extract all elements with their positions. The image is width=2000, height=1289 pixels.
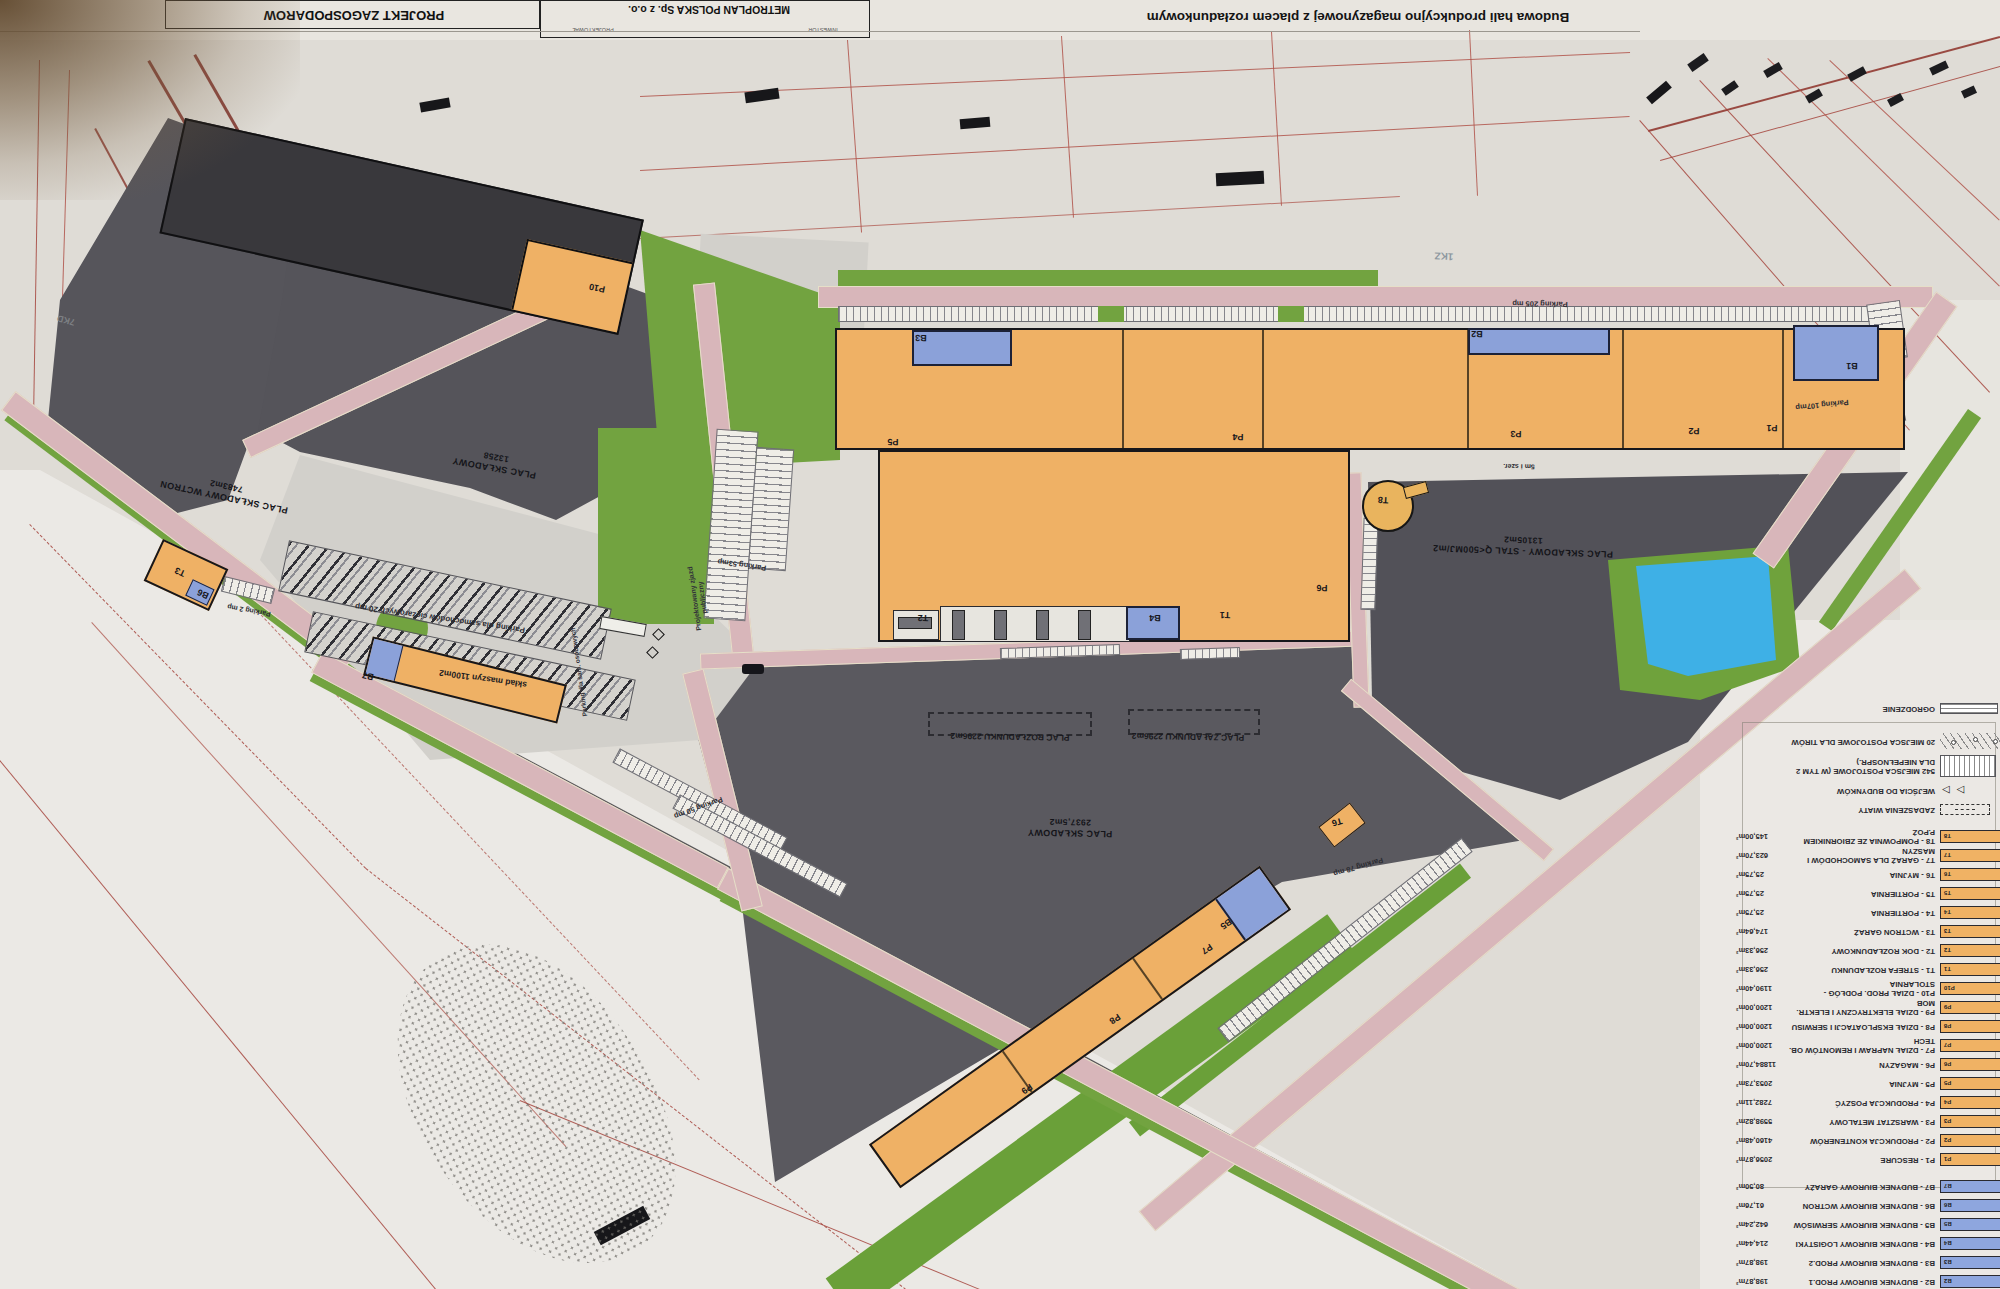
building-tag-p1: P1 [1766, 423, 1777, 433]
legend-symbol: B7 [1940, 1180, 2000, 1193]
legend-row-label: WEJŚCIA DO BUDYNKÓW [1837, 786, 1935, 795]
legend-row: T5T5 - PORTIERNIA25,75m² [1736, 884, 2000, 903]
legend-row-area: 1200,00m² [1736, 1022, 1772, 1031]
legend-symbol: P1 [1940, 1153, 2000, 1166]
legend-row-label: T1 - STREFA ROZŁADUNKU [1831, 965, 1935, 974]
legend-row-area: 1200,00m² [1736, 1003, 1772, 1012]
hall-divider-2 [1262, 330, 1264, 448]
cad-line [1061, 36, 1074, 218]
legend-row-area: 642,24m² [1736, 1220, 1768, 1229]
parking-stripes-icon [1940, 755, 1996, 777]
building-tag-b1: B1 [1846, 361, 1858, 371]
legend-row-label: P1 - RESCURE [1880, 1155, 1935, 1164]
legend-row-label: T6 - MYJNIA [1890, 870, 1936, 879]
legend-row-area: 25,75m² [1736, 889, 1764, 898]
truck-space-dot [1993, 740, 1998, 745]
legend-row-label: B4 - BUDYNEK BIUROWY LOGISTYKI [1796, 1239, 1935, 1248]
cad-line [1271, 32, 1282, 206]
legend-symbol: B5 [1940, 1218, 2000, 1231]
legend-row-area: 214,44m² [1736, 1239, 1768, 1248]
legend-row: P7P7 - DZIAŁ NAPRAW I REMONTÓW OB. TECH1… [1736, 1036, 2000, 1055]
legend-symbol: P7 [1940, 1039, 2000, 1052]
legend-row-label: ZADASZENIA WIATY [1858, 805, 1935, 814]
legend-row: OGRODZENIE [1736, 699, 2000, 718]
legend-symbol: P2 [1940, 1134, 2000, 1147]
legend-row-area: 623,70m² [1736, 851, 1768, 860]
hall-divider-1 [1122, 330, 1124, 448]
cad-line [640, 196, 1400, 239]
legend-symbol: B6 [1940, 1199, 2000, 1212]
legend-row-label: P3 - WARSZTAT METALOWY [1829, 1117, 1935, 1126]
legend-symbol [1940, 804, 2000, 815]
legend-swatch: B2 [1940, 1275, 2000, 1288]
legend-row: B2B2 - BUDYNEK BIUROWY PROD.1198,87m² [1736, 1272, 2000, 1289]
building-b1 [1793, 325, 1879, 381]
legend-swatch: P8 [1940, 1020, 2000, 1033]
cad-line [847, 40, 862, 232]
legend-row: B5B5 - BUDYNEK BIUROWY SERWISÓW642,24m² [1736, 1215, 2000, 1234]
building-tag-t8: T8 [1377, 495, 1388, 506]
legend-row: T8T8 - POMPOWNIA ZE ZBIORNIKIEM P.POŻ145… [1736, 827, 2000, 846]
legend-row-area: 174,64m² [1736, 927, 1768, 936]
building-b4 [1126, 606, 1180, 640]
cad-line [640, 52, 1630, 97]
legend-symbol: P3 [1940, 1115, 2000, 1128]
legend-row: P9P9 - DZIAŁ ELEKTRYCZNY I ELEKTR. MOB12… [1736, 998, 2000, 1017]
legend-symbol: T3 [1940, 925, 2000, 938]
legend-swatch: T6 [1940, 868, 2000, 881]
legend-symbol: P8 [1940, 1020, 2000, 1033]
legend-swatch: B4 [1940, 1237, 2000, 1250]
building-tag-b4: B4 [1149, 613, 1161, 623]
legend-row-area: 7282,11m² [1736, 1098, 1772, 1107]
legend-row-area: 61,76m² [1736, 1201, 1764, 1210]
legend-row: T3T3 - WCTRON GARAŻ174,64m² [1736, 922, 2000, 941]
legend-swatch: T1 [1940, 963, 2000, 976]
cadastral-building [1763, 62, 1783, 78]
legend-row-label: P5 - MYJNIA [1889, 1079, 1935, 1088]
photo-corner-shadow [0, 0, 300, 200]
legend-row: P5P5 - MYJNIA2053,73m² [1736, 1074, 2000, 1093]
cad-line [1829, 60, 2000, 221]
dock-strip [940, 606, 1130, 642]
legend-row-label: T2 - DOK ROZŁADUNKOWY [1831, 946, 1935, 955]
cadastral-building [1887, 93, 1904, 107]
building-tag-p5: P5 [887, 437, 898, 447]
legend-row: T7T7 - GARAŻ DLA SAMOCHODÓW I MASZYN623,… [1736, 846, 2000, 865]
legend-swatch: P5 [1940, 1077, 2000, 1090]
legend-row: B6B6 - BUDYNEK BIUROWY WCTRON61,76m² [1736, 1196, 2000, 1215]
canopy-icon [1940, 804, 1990, 815]
legend-row-area: 2056,87m² [1736, 1155, 1772, 1164]
legend-swatch: P10 [1940, 982, 2000, 995]
building-tag-b3: B3 [915, 333, 927, 343]
legend-swatch: T4 [1940, 906, 2000, 919]
parking-strip-53b [748, 447, 794, 571]
legend-row-label: B5 - BUDYNEK BIUROWY SERWISÓW [1794, 1220, 1935, 1229]
legend-row: ZADASZENIA WIATY [1736, 800, 2000, 819]
legend-row-area: 1200,00m² [1736, 1041, 1772, 1050]
legend-row-label: 542 MIEJSCA POSTOJOWE (W TYM 2 DLA NIEPE… [1783, 757, 1935, 774]
legend-symbol: T8 [1940, 830, 2000, 843]
building-tag-t2: T2 [918, 613, 929, 623]
legend-swatch: T7 [1940, 849, 2000, 862]
site-plan-photo: PLAC SKŁADOWY WCTRON 7483m2 PLAC SKŁADOW… [0, 0, 2000, 1289]
legend-swatch: P4 [1940, 1096, 2000, 1109]
legend-row-label: 20 MIEJSCA POSTOJOWE DLA TIRÓW [1791, 737, 1935, 746]
legend-row-label: B7 - BUDYNEK BIUROWY GARAŻY [1805, 1182, 1935, 1191]
titleblock-company-name: METROPLAN POLSKA Sp. z o.o. [628, 4, 790, 16]
legend-row: 20 MIEJSCA POSTOJOWE DLA TIRÓW [1736, 732, 2000, 751]
legend-symbol: B3 [1940, 1256, 2000, 1269]
legend-swatch: T2 [1940, 944, 2000, 957]
titleblock-cell-left: PROJEKTOWAŁ [572, 27, 613, 33]
legend-row-area: 4160,48m² [1736, 1136, 1772, 1145]
cadastral-building [1805, 89, 1823, 104]
legend-row-area: 256,33m² [1736, 946, 1768, 955]
dock-truck-2 [994, 610, 1007, 640]
legend-swatch: B3 [1940, 1256, 2000, 1269]
survey-mark [1216, 171, 1265, 186]
fence-icon [1940, 703, 1998, 714]
survey-mark [960, 117, 991, 130]
building-tag-p3: P3 [1510, 429, 1521, 439]
building-tag-p6: P6 [1316, 583, 1327, 593]
legend-symbol: B2 [1940, 1275, 2000, 1288]
legend-row-label: T7 - GARAŻ DLA SAMOCHODÓW I MASZYN [1783, 847, 1935, 864]
cadastral-building [1929, 61, 1949, 76]
parking-205-gap1 [1098, 306, 1124, 322]
building-tag-b2: B2 [1471, 329, 1483, 339]
legend-row-area: 198,87m² [1736, 1258, 1768, 1267]
legend-symbol: P4 [1940, 1096, 2000, 1109]
legend-swatch: P1 [1940, 1153, 2000, 1166]
dock-truck-4 [1078, 610, 1091, 640]
label-road-ref-1kz: 1KZ [1434, 250, 1453, 263]
legend-symbol: P6 [1940, 1058, 2000, 1071]
legend-row-label: T3 - WCTRON GARAŻ [1854, 927, 1935, 936]
legend-row-area: 80,50m² [1736, 1182, 1764, 1191]
legend-swatch: P3 [1940, 1115, 2000, 1128]
legend-row-area: 2053,73m² [1736, 1079, 1772, 1088]
titleblock-drawing-title: Budowa hali produkcyjno magazynowej z pl… [1147, 9, 1569, 25]
label-parking-205: Parking 205 mp [1512, 298, 1568, 308]
cadastral-building [1847, 66, 1867, 82]
titleblock-cell-right: INWESTOR [808, 27, 838, 33]
legend-swatch: B5 [1940, 1218, 2000, 1231]
survey-mark [1646, 81, 1672, 105]
building-tag-t1: T1 [1220, 610, 1231, 620]
legend-symbol [1940, 755, 2000, 777]
legend-row-label: P7 - DZIAŁ NAPRAW I REMONTÓW OB. TECH [1783, 1037, 1935, 1054]
canopy-icon-dash [1955, 809, 1975, 810]
hall-divider-5 [1782, 330, 1784, 448]
parking-strip-steel [1360, 518, 1378, 610]
legend-symbol [1940, 703, 2000, 714]
legend-symbol: T6 [1940, 868, 2000, 881]
cadastral-building [1961, 85, 1977, 98]
titleblock-company-box: METROPLAN POLSKA Sp. z o.o. PROJEKTOWAŁ … [540, 0, 870, 38]
legend-row: T2T2 - DOK ROZŁADUNKOWY256,33m² [1736, 941, 2000, 960]
truck-space-dot [1951, 741, 1956, 746]
legend-row-area: 1190,40m² [1736, 984, 1772, 993]
legend-swatch: B7 [1940, 1180, 2000, 1193]
legend-symbol: T7 [1940, 849, 2000, 862]
band-divider-2 [1132, 958, 1162, 1000]
legend-symbol: P5 [1940, 1077, 2000, 1090]
legend-row: T1T1 - STREFA ROZŁADUNKU256,33m² [1736, 960, 2000, 979]
legend-row: T6T6 - MYJNIA25,75m² [1736, 865, 2000, 884]
legend-row: P10P10 - DZIAŁ PROD. PODŁÓG - STOLARNIA1… [1736, 979, 2000, 998]
legend-row-label: P10 - DZIAŁ PROD. PODŁÓG - STOLARNIA [1783, 980, 1935, 997]
legend-row: ▷ ▷WEJŚCIA DO BUDYNKÓW [1736, 781, 2000, 800]
legend-swatch: T8 [1940, 830, 2000, 843]
legend-row-label: OGRODZENIE [1883, 704, 1935, 713]
legend-row: B4B4 - BUDYNEK BIUROWY LOGISTYKI214,44m² [1736, 1234, 2000, 1253]
legend-symbol: T5 [1940, 887, 2000, 900]
dock-truck-1 [952, 610, 965, 640]
legend-row-label: P8 - DZIAŁ EKSPLOATACJI I SERWISU [1792, 1022, 1935, 1031]
cad-line [640, 116, 1630, 171]
legend-row-label: T4 - PORTIERNIA [1871, 908, 1935, 917]
legend-row: P4P4 - PRODUKCJA POSZYĆ7282,11m² [1736, 1093, 2000, 1112]
legend-row-label: B6 - BUDYNEK BIUROWY WCTRON [1803, 1201, 1935, 1210]
building-tag-p4: P4 [1232, 432, 1243, 442]
road-top [818, 286, 1933, 308]
legend-symbol: T1 [1940, 963, 2000, 976]
legend-row-label: T5 - PORTIERNIA [1871, 889, 1935, 898]
cadastral-building [1721, 80, 1739, 96]
legend-row-area: 256,33m² [1736, 965, 1768, 974]
legend-row-label: P2 - PRODUKCJA KONTENERÓW [1810, 1136, 1935, 1145]
legend-row-area: 5598,82m² [1736, 1117, 1772, 1126]
legend-row-label: P9 - DZIAŁ ELEKTRYCZNY I ELEKTR. MOB [1783, 999, 1935, 1016]
entrance-arrows-icon: ▷ ▷ [1940, 785, 1964, 796]
legend-row-label: P4 - PRODUKCJA POSZYĆ [1835, 1098, 1935, 1107]
truck-space-dot [1973, 738, 1978, 743]
label-yard-south: PLAC SKŁADOWY 2937,5m2 [1027, 817, 1112, 839]
legend-row-area: 25,75m² [1736, 870, 1764, 879]
legend-row: P8P8 - DZIAŁ EKSPLOATACJI I SERWISU1200,… [1736, 1017, 2000, 1036]
legend-row-label: T8 - POMPOWNIA ZE ZBIORNIKIEM P.POŻ [1783, 828, 1935, 845]
label-zone-unloading: PLAC ROZŁADUNKU 2296m2 [950, 731, 1069, 743]
legend-row: P6P6 - MAGAZYN11884,70m² [1736, 1055, 2000, 1074]
parking-strip-205 [838, 306, 1894, 322]
legend-symbol: ▷ ▷ [1940, 785, 2000, 796]
parking-205-gap2 [1278, 306, 1304, 322]
legend-symbol: T2 [1940, 944, 2000, 957]
legend-row-area: 11884,70m² [1736, 1060, 1776, 1069]
building-b2 [1468, 328, 1610, 355]
hall-divider-4 [1622, 330, 1624, 448]
legend-row: B3B3 - BUDYNEK BIUROWY PROD.2198,87m² [1736, 1253, 2000, 1272]
legend-row: 542 MIEJSCA POSTOJOWE (W TYM 2 DLA NIEPE… [1736, 751, 2000, 781]
legend-swatch: T5 [1940, 887, 2000, 900]
legend-symbol [1940, 734, 2000, 750]
dock-truck-3 [1036, 610, 1049, 640]
cad-line [1469, 30, 1478, 196]
legend-symbol: P10 [1940, 982, 2000, 995]
legend-row: P1P1 - RESCURE2056,87m² [1736, 1150, 2000, 1169]
building-tag-p2: P2 [1688, 426, 1699, 436]
legend-row-area: 145,00m² [1736, 832, 1768, 841]
legend-swatch: P6 [1940, 1058, 2000, 1071]
legend: OGRODZENIE20 MIEJSCA POSTOJOWE DLA TIRÓW… [1736, 699, 2000, 1289]
legend-row-area: 198,87m² [1736, 1277, 1768, 1286]
legend-symbol: B4 [1940, 1237, 2000, 1250]
legend-swatch: B6 [1940, 1199, 2000, 1212]
legend-row-label: B3 - BUDYNEK BIUROWY PROD.2 [1809, 1258, 1935, 1267]
legend-symbol: T4 [1940, 906, 2000, 919]
legend-row: T4T4 - PORTIERNIA25,75m² [1736, 903, 2000, 922]
label-yard-south-name: PLAC SKŁADOWY [1027, 827, 1112, 839]
parking-strip-dock2 [1180, 647, 1240, 660]
legend-row-area: 25,75m² [1736, 908, 1764, 917]
road-sign-pill [742, 664, 764, 674]
legend-row-label: B2 - BUDYNEK BIUROWY PROD.1 [1809, 1277, 1935, 1286]
legend-row-label: P6 - MAGAZYN [1879, 1060, 1935, 1069]
cadastral-building [1687, 53, 1709, 72]
survey-mark [419, 97, 450, 112]
truck-parking-icon [1940, 734, 2000, 750]
legend-swatch: P2 [1940, 1134, 2000, 1147]
legend-row: P3P3 - WARSZTAT METALOWY5598,82m² [1736, 1112, 2000, 1131]
legend-swatch: P9 [1940, 1001, 2000, 1014]
legend-symbol: P9 [1940, 1001, 2000, 1014]
legend-row: B7B7 - BUDYNEK BIUROWY GARAŻY80,50m² [1736, 1177, 2000, 1196]
survey-mark [744, 88, 779, 104]
label-zone-loading: PLAC ZAŁADUNKU 2296m2 [1132, 731, 1245, 743]
legend-swatch: T3 [1940, 925, 2000, 938]
legend-swatch: P7 [1940, 1039, 2000, 1052]
building-b3 [912, 330, 1012, 366]
legend-row: P2P2 - PRODUKCJA KONTENERÓW4160,48m² [1736, 1131, 2000, 1150]
label-road-note: 5m i szer. [1503, 462, 1535, 471]
